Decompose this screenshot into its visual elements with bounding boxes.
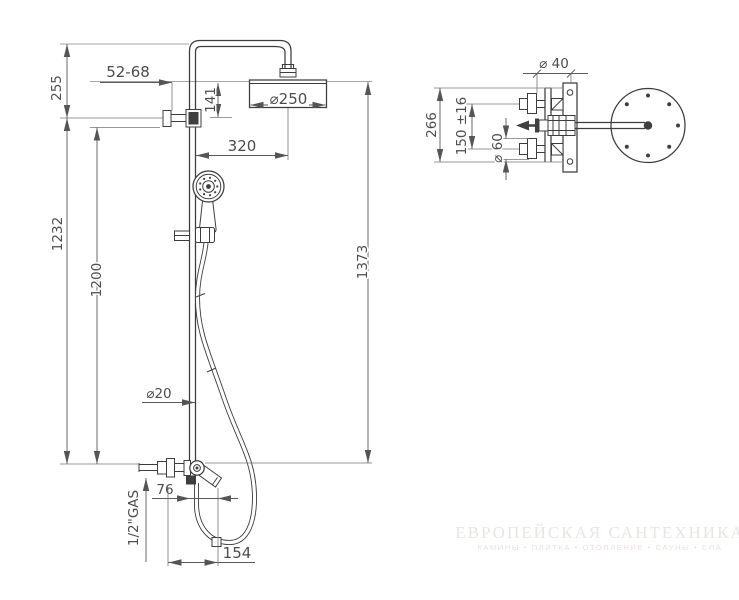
watermark-subtitle: КАМИНЫ • ПЛИТКА • ОТОПЛЕНИЕ • САУНЫ • СП… — [477, 543, 722, 552]
dim-adjust-label: 52-68 — [106, 63, 150, 81]
dim-head-drop-141: 141 — [203, 83, 232, 118]
supply-inlet-top — [520, 94, 564, 114]
dim-total-1373: 1373 — [60, 82, 372, 464]
head-connector-nut — [280, 65, 296, 78]
dim-total-1373-label: 1373 — [355, 245, 371, 279]
dim-spout-offset-label: 76 — [156, 482, 173, 498]
dim-inlet-spacing-label: 150 ±16 — [454, 97, 470, 156]
dim-rail-1200: 1200 — [89, 128, 160, 465]
head-screw-dots — [625, 94, 680, 158]
dim-head-diameter-250: ⌀250 — [251, 90, 326, 108]
dim-top-offset-255: 255 — [49, 44, 163, 118]
dim-inlet-spacing-150: 150 ±16 — [454, 97, 519, 156]
dim-top-offset-label: 255 — [49, 75, 65, 101]
dim-arm-diameter-40: ⌀ 40 — [523, 56, 588, 93]
dim-rail-1200-label: 1200 — [89, 263, 105, 297]
shower-hose — [196, 243, 255, 547]
dim-thread-half-gas: 1/2"GAS — [126, 478, 146, 562]
dim-column-1232-label: 1232 — [50, 217, 66, 251]
shower-system-drawing: ЕВРОПЕЙСКАЯ САНТЕХНИКА КАМИНЫ • ПЛИТКА •… — [0, 0, 739, 600]
dim-escutcheon-label: ⌀ 60 — [490, 133, 506, 163]
dim-hose-loop-label: 154 — [223, 544, 252, 562]
dim-depth-label: 266 — [424, 112, 440, 138]
wall-bracket — [163, 110, 201, 128]
dim-arm-diameter-label: ⌀ 40 — [539, 56, 569, 72]
side-view: ⌀ 40 266 150 ±16 ⌀ 60 — [424, 56, 685, 180]
dim-thread-label: 1/2"GAS — [126, 490, 142, 546]
dim-column-1232: 1232 — [50, 118, 67, 464]
dim-adjust-52-68: 52-68 — [100, 63, 172, 111]
hand-shower — [193, 171, 224, 233]
dim-pipe-diameter-label: ⌀20 — [146, 386, 171, 402]
screw-hole-top — [567, 90, 573, 96]
front-view: 52-68 255 141 ⌀250 320 1232 — [49, 41, 372, 567]
dim-head-diameter-label: ⌀250 — [270, 90, 308, 108]
hand-shower-holder — [175, 228, 215, 243]
screw-hole-bottom — [567, 159, 573, 165]
supply-inlet-bottom — [520, 139, 564, 159]
dim-arm-reach-320: 320 — [196, 108, 288, 160]
wall-union-flange — [167, 459, 175, 478]
watermark-title: ЕВРОПЕЙСКАЯ САНТЕХНИКА — [455, 523, 739, 542]
watermark: ЕВРОПЕЙСКАЯ САНТЕХНИКА КАМИНЫ • ПЛИТКА •… — [455, 523, 739, 552]
shower-arm-top — [575, 123, 645, 129]
technical-drawing-page: ЕВРОПЕЙСКАЯ САНТЕХНИКА КАМИНЫ • ПЛИТКА •… — [0, 0, 739, 600]
hose-weight — [212, 538, 221, 547]
overhead-shower-top — [611, 89, 685, 163]
dim-head-drop-label: 141 — [203, 87, 219, 113]
dim-pipe-diameter-20: ⌀20 — [142, 386, 195, 403]
flow-arrow — [516, 121, 529, 131]
dim-arm-reach-label: 320 — [228, 137, 257, 155]
